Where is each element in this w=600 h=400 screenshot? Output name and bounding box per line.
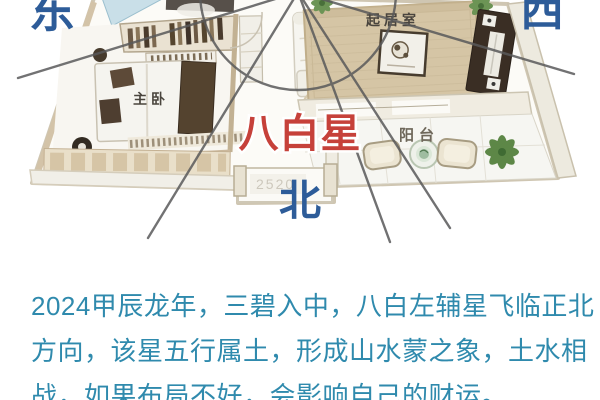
direction-label-north: 北	[279, 177, 321, 224]
plant-balcony	[485, 135, 519, 169]
article-line-1: 2024甲辰龙年，三碧入中，八白左辅星飞临正北	[31, 284, 591, 329]
article-line-2: 方向，该星五行属土，形成山水蒙之象，土水相	[31, 329, 591, 374]
direction-label-west: 西	[520, 0, 564, 35]
direction-label-east: 东	[29, 0, 75, 37]
balcony-label: 阳台	[399, 126, 439, 144]
bedroom-label: 主卧	[133, 91, 169, 107]
article-text: 2024甲辰龙年，三碧入中，八白左辅星飞临正北 方向，该星五行属土，形成山水蒙之…	[31, 284, 591, 400]
article-line-3: 战，如果布局不好，会影响自己的财运。	[31, 374, 591, 400]
star-overlay-label: 八白星	[239, 112, 362, 156]
floor-plan: 主卧	[0, 0, 600, 280]
fengshui-illustration: 主卧	[0, 0, 600, 400]
